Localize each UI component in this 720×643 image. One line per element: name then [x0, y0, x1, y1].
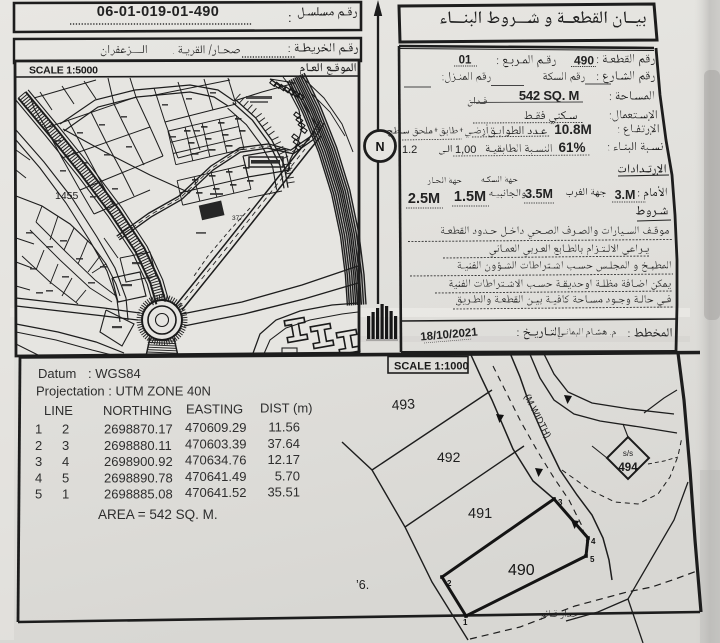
svg-text:2.5M: 2.5M — [408, 191, 440, 207]
svg-text:2698880.11: 2698880.11 — [104, 438, 172, 453]
svg-text:2: 2 — [62, 422, 69, 437]
svg-text:: WGS84: : WGS84 — [88, 366, 141, 381]
svg-text:NORTHING: NORTHING — [103, 403, 172, 418]
svg-text:LINE: LINE — [44, 403, 73, 418]
svg-text:06-01-019-01-490: 06-01-019-01-490 — [97, 4, 220, 20]
svg-text:490: 490 — [508, 562, 535, 579]
svg-text:490: 490 — [574, 54, 594, 68]
svg-text:1.2: 1.2 — [402, 144, 417, 156]
svg-text:EASTING: EASTING — [186, 402, 243, 417]
svg-text:4: 4 — [35, 470, 42, 485]
svg-text:2698900.92: 2698900.92 — [104, 454, 173, 469]
svg-text:2698890.78: 2698890.78 — [104, 470, 173, 485]
svg-text:492: 492 — [437, 449, 461, 465]
svg-text:491: 491 — [468, 506, 492, 522]
svg-text:3: 3 — [35, 454, 42, 469]
svg-text:5: 5 — [590, 555, 595, 564]
svg-text:11.56: 11.56 — [268, 420, 300, 435]
svg-text:4: 4 — [62, 454, 69, 469]
svg-text:5.70: 5.70 — [275, 468, 300, 483]
svg-text:4: 4 — [591, 537, 596, 546]
svg-text:377: 377 — [232, 215, 243, 222]
svg-text:N: N — [375, 140, 384, 154]
svg-text:12.17: 12.17 — [267, 452, 300, 467]
svg-text:2698870.17: 2698870.17 — [104, 422, 173, 437]
svg-text:5: 5 — [35, 487, 42, 502]
svg-text:2: 2 — [447, 579, 452, 588]
svg-text:61%: 61% — [558, 140, 585, 155]
svg-text:1,00: 1,00 — [455, 144, 476, 156]
svg-text:3: 3 — [62, 438, 69, 453]
svg-text:Projectation : UTM ZONE 40N: Projectation : UTM ZONE 40N — [36, 384, 211, 399]
svg-text:1: 1 — [35, 422, 42, 437]
svg-text:3.5M: 3.5M — [525, 187, 553, 201]
svg-text::: : — [288, 10, 292, 25]
svg-text:493: 493 — [391, 395, 416, 413]
svg-text:1.5M: 1.5M — [454, 189, 486, 205]
svg-text:470641.49: 470641.49 — [185, 469, 246, 484]
svg-text:1: 1 — [62, 487, 69, 502]
svg-text:SCALE 1:1000: SCALE 1:1000 — [394, 361, 469, 373]
svg-text:542 SQ. M: 542 SQ. M — [519, 88, 579, 103]
svg-text:35.51: 35.51 — [267, 485, 300, 500]
svg-text:’6.: ’6. — [356, 578, 369, 592]
svg-text:2698885.08: 2698885.08 — [104, 487, 173, 502]
svg-text:470634.76: 470634.76 — [185, 453, 246, 468]
svg-text:494: 494 — [618, 462, 638, 474]
svg-text:470641.52: 470641.52 — [185, 485, 246, 500]
svg-text:10.8M: 10.8M — [554, 122, 592, 137]
svg-text:01: 01 — [459, 55, 472, 67]
svg-text:AREA = 542 SQ. M.: AREA = 542 SQ. M. — [98, 507, 218, 522]
svg-text:470609.29: 470609.29 — [185, 420, 246, 435]
svg-text:SCALE 1:5000: SCALE 1:5000 — [29, 65, 98, 77]
svg-text:2: 2 — [35, 438, 42, 453]
svg-text:470603.39: 470603.39 — [185, 436, 246, 451]
svg-text:5: 5 — [62, 470, 69, 485]
svg-text:1: 1 — [463, 618, 468, 627]
svg-text:3.M: 3.M — [615, 188, 636, 202]
svg-text:s/s: s/s — [623, 449, 633, 458]
svg-text:1455: 1455 — [55, 190, 79, 202]
svg-text:DIST (m): DIST (m) — [260, 401, 312, 416]
svg-text:37.64: 37.64 — [267, 436, 300, 451]
svg-text:3: 3 — [558, 498, 563, 507]
svg-text:Datum: Datum — [38, 366, 76, 381]
